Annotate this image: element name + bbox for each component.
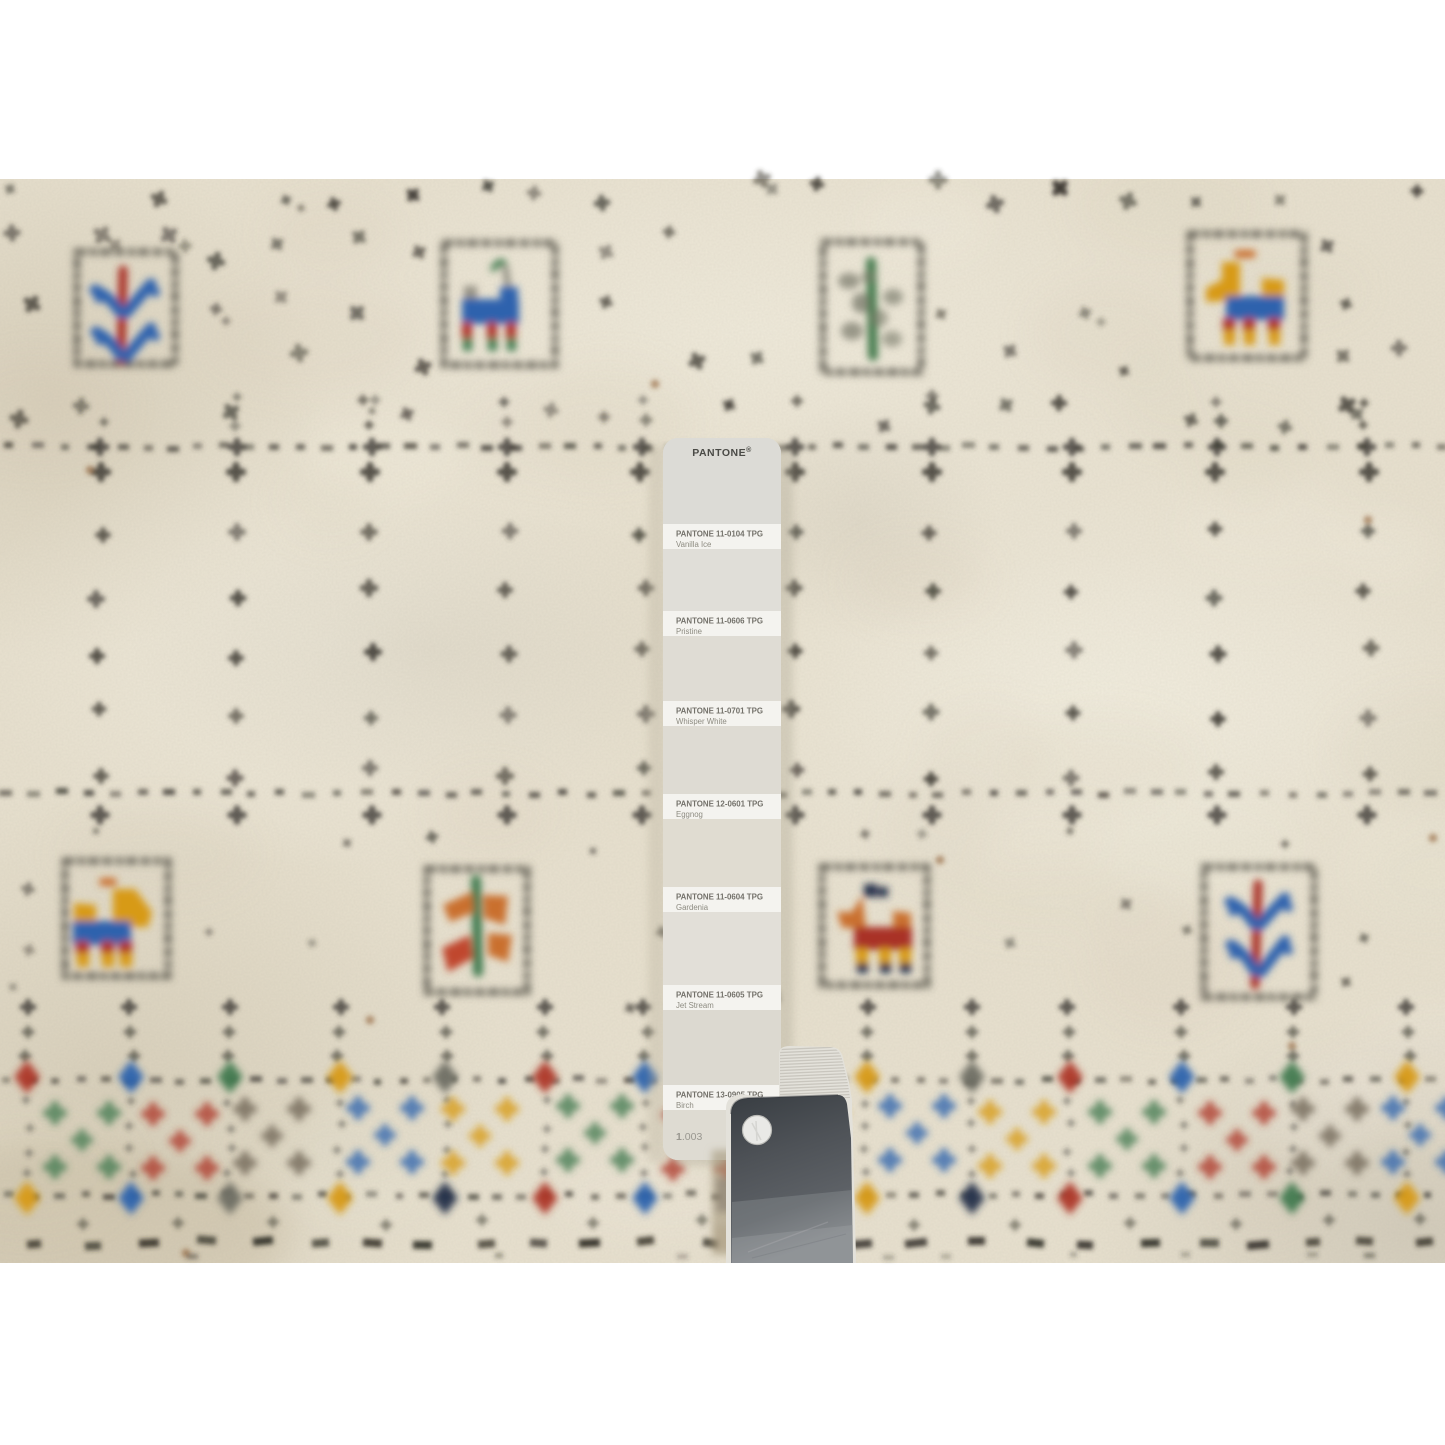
svg-text:Birch: Birch xyxy=(676,1101,694,1110)
svg-text:Vanilla Ice: Vanilla Ice xyxy=(676,540,711,549)
svg-text:Eggnog: Eggnog xyxy=(676,810,703,819)
svg-text:PANTONE 11-0606 TPG: PANTONE 11-0606 TPG xyxy=(676,617,763,626)
svg-text:1.003: 1.003 xyxy=(676,1131,702,1143)
svg-text:PANTONE 11-0605 TPG: PANTONE 11-0605 TPG xyxy=(676,991,763,1000)
svg-text:PANTONE 11-0104 TPG: PANTONE 11-0104 TPG xyxy=(676,530,763,539)
svg-text:PANTONE 11-0701 TPG: PANTONE 11-0701 TPG xyxy=(676,707,763,716)
svg-text:Jet Stream: Jet Stream xyxy=(676,1001,714,1010)
svg-text:PANTONE 11-0604 TPG: PANTONE 11-0604 TPG xyxy=(676,893,763,902)
svg-text:PANTONE®: PANTONE® xyxy=(692,446,752,459)
svg-text:Whisper White: Whisper White xyxy=(676,717,727,726)
svg-text:Pristine: Pristine xyxy=(676,627,702,636)
svg-text:Gardenia: Gardenia xyxy=(676,903,709,912)
svg-text:PANTONE 12-0601 TPG: PANTONE 12-0601 TPG xyxy=(676,800,763,809)
